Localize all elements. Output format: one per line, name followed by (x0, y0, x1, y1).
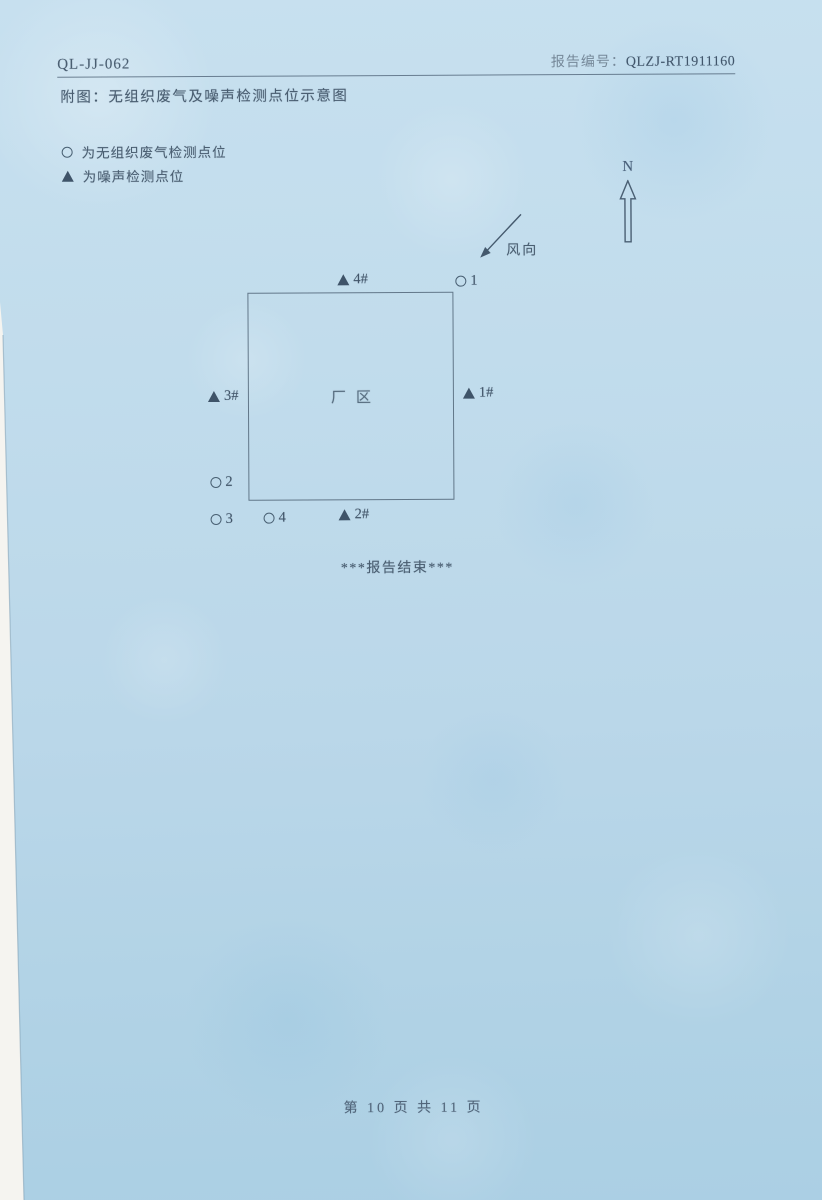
north-label: N (610, 159, 646, 176)
marker-noise-1: 1# (463, 385, 494, 402)
marker-label: 2 (225, 474, 232, 491)
noise-point-icon (208, 391, 220, 402)
page-footer: 第 10 页 共 11 页 (3, 1095, 822, 1119)
report-number-value: QLZJ-RT1911160 (626, 54, 735, 70)
marker-gas-3: 3 (211, 511, 233, 528)
marker-label: 4# (353, 271, 368, 288)
noise-point-icon (337, 274, 349, 285)
noise-point-icon (463, 388, 475, 399)
gas-point-icon (62, 146, 73, 157)
wind-label: 风向 (506, 239, 538, 259)
north-arrow-icon (619, 180, 637, 244)
marker-gas-4: 4 (264, 510, 286, 527)
noise-point-icon (62, 170, 74, 181)
marker-noise-3: 3# (208, 388, 239, 405)
marker-label: 1# (479, 385, 494, 402)
page-edge (0, 0, 30, 1200)
figure-title: 附图：无组织废气及噪声检测点位示意图 (60, 84, 348, 107)
report-number-label: 报告编号： (551, 55, 626, 70)
noise-point-icon (339, 509, 351, 520)
marker-label: 1 (470, 273, 477, 290)
header-row: QL-JJ-062 报告编号：QLZJ-RT1911160 (57, 50, 735, 78)
gas-point-icon (264, 513, 275, 524)
gas-point-icon (211, 514, 222, 525)
end-of-report-text: ***报告结束*** (341, 557, 454, 578)
marker-noise-4: 4# (337, 271, 368, 288)
legend-item-gas: 为无组织废气检测点位 (62, 139, 227, 164)
legend-noise-label: 为噪声检测点位 (83, 165, 185, 186)
marker-label: 3 (226, 511, 233, 528)
marker-label: 3# (224, 388, 239, 405)
gas-point-icon (210, 477, 221, 488)
scanned-page: QL-JJ-062 报告编号：QLZJ-RT1911160 附图：无组织废气及噪… (0, 0, 822, 1200)
marker-label: 4 (279, 510, 286, 527)
legend-gas-label: 为无组织废气检测点位 (82, 141, 227, 162)
marker-gas-2: 2 (210, 474, 232, 491)
marker-noise-2: 2# (339, 506, 370, 523)
legend: 为无组织废气检测点位 为噪声检测点位 (62, 139, 227, 188)
compass: N (610, 159, 646, 244)
doc-code: QL-JJ-062 (57, 56, 130, 73)
marker-gas-1: 1 (455, 273, 477, 290)
factory-area-label: 厂区 (321, 386, 381, 407)
gas-point-icon (455, 276, 466, 287)
page-content: QL-JJ-062 报告编号：QLZJ-RT1911160 附图：无组织废气及噪… (0, 0, 822, 1200)
factory-square: 厂区 (247, 292, 454, 501)
report-number-field: 报告编号：QLZJ-RT1911160 (551, 50, 735, 71)
legend-item-noise: 为噪声检测点位 (62, 163, 227, 188)
marker-label: 2# (355, 506, 370, 523)
